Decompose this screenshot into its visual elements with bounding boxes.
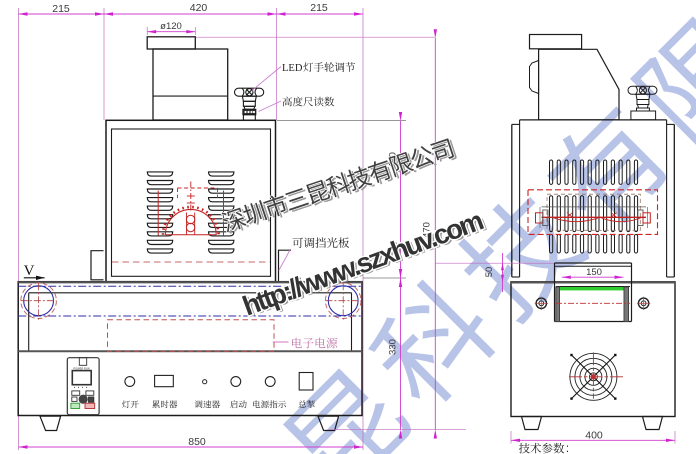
svg-text:400: 400 bbox=[585, 430, 603, 442]
svg-text:215: 215 bbox=[310, 2, 328, 14]
svg-text:215: 215 bbox=[52, 3, 70, 15]
svg-text:850: 850 bbox=[188, 436, 206, 448]
svg-text:POWER RUN: POWER RUN bbox=[73, 366, 89, 370]
svg-text:LED: LED bbox=[282, 63, 303, 74]
svg-text:50: 50 bbox=[484, 267, 495, 278]
svg-text:ø120: ø120 bbox=[160, 21, 182, 32]
svg-text:150: 150 bbox=[586, 267, 602, 278]
svg-text:420: 420 bbox=[190, 2, 208, 14]
svg-text::: : bbox=[566, 443, 569, 454]
svg-text:330: 330 bbox=[388, 339, 399, 355]
svg-text:V: V bbox=[24, 263, 35, 279]
